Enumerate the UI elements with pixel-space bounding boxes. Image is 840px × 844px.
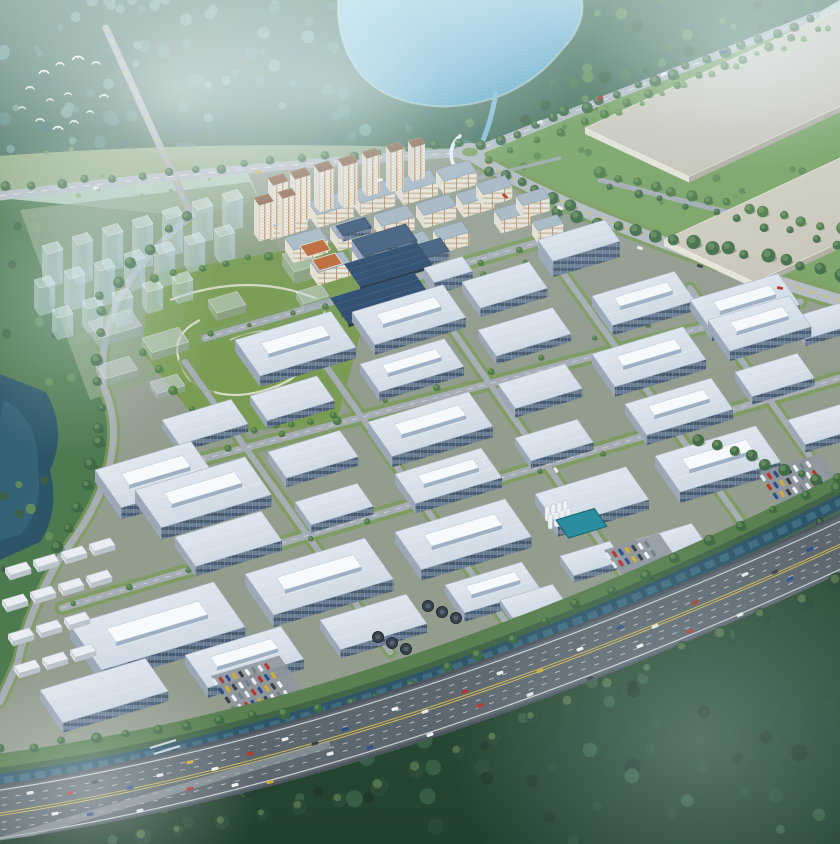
tree-highlight	[514, 132, 518, 136]
rooftop-vent-core	[390, 641, 395, 646]
canopy-blob	[548, 762, 557, 771]
canopy-blob	[332, 135, 343, 146]
canopy-blob	[540, 100, 550, 110]
tree-highlight	[723, 242, 730, 249]
tree-highlight	[634, 178, 638, 182]
canopy-blob	[234, 126, 245, 137]
tree-highlight	[817, 519, 821, 523]
canopy-blob	[713, 174, 721, 182]
canopy-blob	[42, 345, 51, 354]
canopy-blob	[329, 42, 340, 53]
tree-highlight	[523, 260, 525, 262]
tree-highlight	[616, 110, 620, 114]
canopy-blob	[322, 83, 334, 95]
tree-highlight	[799, 471, 803, 475]
tree-highlight	[705, 536, 711, 542]
tree-highlight	[559, 106, 564, 111]
tree-highlight	[94, 437, 100, 443]
canopy-blob	[278, 102, 286, 110]
tree-highlight	[774, 30, 779, 35]
tree-highlight	[58, 180, 63, 185]
canopy-blob	[5, 222, 12, 229]
roundabout-island	[462, 148, 478, 157]
tree-highlight	[485, 168, 490, 173]
canopy-blob	[465, 118, 474, 127]
canopy-blob	[67, 373, 76, 382]
canopy-blob	[70, 12, 80, 22]
canopy-blob	[337, 105, 351, 119]
canopy-blob	[327, 1, 336, 10]
canopy-blob	[231, 70, 239, 78]
tree-highlight	[787, 227, 791, 231]
canopy-blob	[768, 788, 782, 802]
canopy-blob	[44, 79, 52, 87]
tree-highlight	[183, 212, 188, 217]
tree-highlight	[183, 722, 188, 727]
canopy-blob	[103, 78, 114, 89]
canopy-blob	[741, 787, 750, 796]
tree-highlight	[486, 157, 490, 161]
tree-highlight	[714, 209, 717, 212]
canopy-blob	[213, 118, 226, 131]
tree-highlight	[801, 37, 804, 40]
canopy-blob	[631, 20, 643, 32]
tree-highlight	[791, 23, 796, 28]
tree-highlight	[645, 90, 650, 95]
canopy-blob	[534, 152, 542, 160]
canopy-blob	[25, 504, 36, 515]
canopy-blob	[616, 8, 627, 19]
tree-highlight	[688, 236, 695, 243]
tree-highlight	[539, 355, 542, 358]
tree-highlight	[781, 212, 785, 216]
tree-highlight	[558, 129, 562, 133]
scene-canvas	[0, 0, 840, 844]
tree-highlight	[534, 137, 537, 140]
tree-highlight	[217, 816, 224, 823]
ghost-tower	[142, 279, 163, 314]
tree-highlight	[258, 809, 264, 815]
tree-highlight	[248, 323, 250, 325]
tree-highlight	[761, 224, 765, 228]
tree-highlight	[674, 82, 678, 86]
canopy-blob	[776, 825, 785, 834]
tree-highlight	[126, 258, 132, 264]
canopy-blob	[40, 121, 52, 133]
canopy-blob	[681, 794, 694, 807]
tree-highlight	[816, 264, 822, 270]
canopy-blob	[400, 114, 407, 121]
tree-highlight	[601, 111, 605, 115]
canopy-blob	[759, 730, 772, 743]
tree-highlight	[241, 160, 245, 164]
canopy-blob	[70, 1, 82, 13]
tree-highlight	[770, 506, 774, 510]
tower-facade	[391, 149, 404, 193]
canopy-blob	[57, 24, 64, 31]
tree-highlight	[169, 387, 174, 392]
canopy-blob	[16, 342, 26, 352]
tree-highlight	[456, 139, 460, 143]
tree-highlight	[737, 41, 742, 46]
tree-highlight	[834, 242, 838, 246]
tree-highlight	[797, 217, 802, 222]
residential-tower	[338, 155, 358, 209]
tree-highlight	[747, 451, 753, 457]
tree-highlight	[816, 27, 819, 30]
canopy-blob	[594, 10, 601, 17]
tree-highlight	[669, 70, 675, 76]
canopy-blob	[162, 115, 172, 125]
tree-highlight	[660, 91, 663, 94]
canopy-blob	[157, 44, 171, 58]
canopy-blob	[684, 46, 695, 57]
tree-highlight	[186, 568, 189, 571]
tree-highlight	[615, 222, 620, 227]
tree-highlight	[136, 830, 145, 839]
residential-tower	[314, 161, 334, 213]
tree-highlight	[669, 236, 674, 241]
tree-highlight	[94, 424, 99, 429]
canopy-blob	[29, 351, 41, 363]
tree-highlight	[71, 601, 74, 604]
tree-highlight	[607, 184, 610, 187]
tree-highlight	[508, 148, 511, 151]
tree-highlight	[294, 801, 302, 809]
canopy-blob	[0, 492, 9, 501]
rooftop-vent-core	[376, 635, 381, 640]
canopy-blob	[258, 151, 262, 155]
tree-highlight	[314, 704, 319, 709]
tree-highlight	[98, 307, 103, 312]
canopy-blob	[226, 85, 233, 92]
road-car	[93, 186, 99, 189]
tree-highlight	[190, 407, 193, 410]
canopy-blob	[115, 4, 124, 13]
tree-highlight	[681, 82, 684, 85]
canopy-blob	[245, 47, 257, 59]
tree-highlight	[109, 176, 113, 180]
tree-highlight	[123, 731, 127, 735]
canopy-blob	[221, 76, 231, 86]
tree-highlight	[53, 542, 59, 548]
tree-highlight	[2, 182, 7, 187]
canopy-blob	[8, 260, 16, 268]
tree-highlight	[832, 483, 838, 489]
tree-highlight	[200, 266, 203, 269]
tree-highlight	[348, 699, 352, 703]
tree-highlight	[434, 385, 438, 389]
tree-highlight	[696, 72, 700, 76]
tree-highlight	[497, 136, 502, 141]
tree-highlight	[694, 436, 700, 442]
tree-highlight	[92, 355, 98, 361]
tree-highlight	[444, 663, 449, 668]
tree-highlight	[737, 522, 742, 527]
tree-highlight	[519, 178, 523, 182]
tree-highlight	[86, 459, 92, 465]
canopy-blob	[338, 88, 350, 100]
tree-highlight	[780, 465, 786, 471]
tree-highlight	[765, 43, 770, 48]
tree-highlight	[734, 215, 738, 219]
canopy-blob	[268, 59, 280, 71]
tree-highlight	[151, 275, 155, 279]
canopy-blob	[453, 118, 462, 127]
canopy-blob	[592, 802, 601, 811]
tree-highlight	[249, 711, 254, 716]
tree-highlight	[488, 733, 495, 740]
tree-highlight	[166, 169, 170, 173]
canopy-blob	[122, 139, 129, 146]
tree-highlight	[140, 173, 144, 177]
tree-highlight	[652, 183, 657, 188]
tree-highlight	[802, 492, 807, 497]
tree-highlight	[114, 278, 120, 284]
canopy-blob	[12, 105, 19, 112]
tree-highlight	[796, 262, 801, 267]
tree-highlight	[651, 76, 657, 82]
canopy-blob	[646, 744, 656, 754]
tree-highlight	[825, 26, 828, 29]
tree-highlight	[531, 186, 536, 191]
tree-highlight	[731, 447, 736, 452]
tree-highlight	[642, 571, 648, 577]
tree-highlight	[563, 696, 572, 705]
canopy-blob	[305, 17, 314, 26]
canopy-blob	[732, 753, 743, 764]
canopy-blob	[578, 147, 584, 153]
canopy-blob	[33, 370, 40, 377]
tree-highlight	[683, 204, 686, 207]
tree-highlight	[73, 503, 78, 508]
tree-highlight	[431, 141, 436, 146]
tree-highlight	[705, 197, 710, 202]
canopy-blob	[696, 760, 708, 772]
tower-facade	[413, 144, 425, 182]
canopy-blob	[599, 71, 611, 83]
canopy-blob	[13, 222, 21, 230]
tree-highlight	[593, 336, 596, 339]
tower-facade	[259, 201, 273, 241]
canopy-blob	[28, 72, 38, 82]
canopy-blob	[45, 378, 53, 386]
tree-highlight	[156, 366, 160, 370]
tree-highlight	[299, 155, 303, 159]
residential-tower	[254, 194, 274, 242]
tree-highlight	[289, 422, 292, 425]
canopy-blob	[733, 193, 738, 198]
canopy-blob	[562, 124, 567, 129]
residential-tower	[386, 142, 404, 193]
tree-highlight	[94, 378, 99, 383]
tree-highlight	[758, 207, 764, 213]
canopy-blob	[188, 124, 198, 134]
tree-highlight	[631, 225, 637, 231]
ghost-tower	[64, 266, 85, 311]
canopy-blob	[126, 110, 137, 121]
canopy-blob	[521, 115, 532, 126]
tower-facade	[283, 195, 296, 237]
tree-highlight	[478, 260, 481, 263]
silo	[548, 514, 553, 529]
canopy-blob	[302, 105, 312, 115]
canopy-blob	[204, 114, 213, 123]
tree-highlight	[709, 71, 712, 74]
tree-highlight	[808, 16, 812, 20]
tree-highlight	[174, 826, 180, 832]
canopy-blob	[682, 29, 693, 40]
tree-highlight	[323, 304, 326, 307]
canopy-blob	[582, 95, 589, 102]
canopy-blob	[624, 768, 639, 783]
tree-highlight	[830, 574, 839, 583]
canopy-blob	[145, 152, 149, 156]
tree-highlight	[715, 628, 725, 638]
tree-highlight	[722, 63, 726, 67]
tree-highlight	[704, 56, 708, 60]
tree-highlight	[97, 329, 101, 333]
tower-gable	[362, 152, 367, 197]
canopy-blob	[208, 178, 211, 181]
tree-highlight	[223, 261, 226, 264]
canopy-blob	[658, 59, 667, 68]
canopy-blob	[405, 124, 412, 131]
tree-highlight	[334, 794, 341, 801]
residential-tower	[408, 137, 425, 181]
tree-highlight	[322, 152, 326, 156]
tree-highlight	[542, 618, 546, 622]
tree-highlight	[636, 81, 640, 85]
canopy-blob	[207, 91, 221, 105]
tree-highlight	[453, 746, 460, 753]
canopy-blob	[138, 6, 146, 14]
canopy-blob	[208, 5, 218, 15]
canopy-blob	[6, 145, 15, 154]
canopy-blob	[40, 476, 48, 484]
canopy-blob	[730, 23, 736, 29]
canopy-blob	[583, 63, 593, 73]
tree-highlight	[225, 445, 229, 449]
canopy-blob	[605, 105, 610, 110]
canopy-blob	[258, 27, 270, 39]
tree-highlight	[509, 636, 514, 641]
tree-highlight	[640, 102, 642, 104]
tree-highlight	[96, 292, 100, 296]
canopy-blob	[698, 706, 711, 719]
tree-highlight	[682, 62, 686, 66]
tree-highlight	[331, 412, 335, 416]
tree-highlight	[83, 481, 88, 486]
canopy-blob	[269, 2, 281, 14]
canopy-blob	[620, 69, 631, 80]
ghost-tower	[172, 271, 193, 304]
tree-highlight	[99, 405, 103, 409]
canopy-blob	[76, 193, 81, 198]
tree-highlight	[739, 56, 743, 60]
tree-highlight	[280, 709, 286, 715]
canopy-blob	[132, 60, 139, 67]
tree-highlight	[608, 587, 613, 592]
canopy-blob	[363, 792, 374, 803]
canopy-blob	[642, 67, 648, 73]
tree-highlight	[146, 245, 151, 250]
tower-gable	[278, 192, 283, 237]
tree-highlight	[602, 678, 611, 687]
tree-highlight	[140, 349, 144, 353]
canopy-blob	[791, 745, 808, 762]
canopy-blob	[180, 13, 192, 25]
canopy-blob	[739, 188, 745, 194]
tree-highlight	[517, 247, 520, 250]
canopy-blob	[665, 42, 674, 51]
canopy-blob	[181, 39, 191, 49]
tree-highlight	[571, 600, 576, 605]
tower-gable	[314, 165, 319, 212]
tree-highlight	[614, 92, 618, 96]
canopy-blob	[133, 41, 142, 50]
canopy-blob	[758, 23, 764, 29]
tree-highlight	[218, 165, 223, 170]
canopy-blob	[183, 817, 194, 828]
canopy-blob	[719, 17, 726, 24]
tree-highlight	[834, 474, 839, 479]
canopy-blob	[204, 81, 212, 89]
tree-highlight	[667, 188, 672, 193]
canopy-blob	[419, 788, 435, 804]
canopy-blob	[422, 107, 432, 117]
tree-highlight	[267, 157, 271, 161]
tree-highlight	[734, 64, 737, 67]
canopy-blob	[73, 107, 79, 113]
tree-highlight	[782, 46, 785, 49]
canopy-blob	[480, 772, 493, 785]
tree-highlight	[635, 190, 639, 194]
tree-highlight	[817, 223, 821, 227]
canopy-blob	[259, 49, 265, 55]
tree-highlight	[410, 762, 419, 771]
tree-highlight	[756, 609, 763, 616]
tree-highlight	[92, 734, 97, 739]
tree-highlight	[797, 594, 806, 603]
rooftop-vent-core	[440, 610, 445, 615]
tree-highlight	[583, 103, 589, 109]
aerial-render	[0, 0, 840, 844]
canopy-blob	[179, 102, 189, 112]
tree-highlight	[782, 255, 788, 261]
canopy-blob	[826, 699, 834, 707]
tree-highlight	[245, 255, 248, 258]
tower-facade	[319, 168, 333, 212]
tree-highlight	[755, 51, 758, 54]
canopy-blob	[549, 79, 555, 85]
tree-highlight	[572, 212, 578, 218]
canopy-blob	[44, 150, 49, 155]
canopy-blob	[583, 743, 598, 758]
rooftop-vent-core	[404, 647, 409, 652]
canopy-blob	[249, 67, 257, 75]
tree-highlight	[127, 584, 130, 587]
canopy-blob	[584, 149, 592, 157]
canopy-blob	[650, 719, 661, 730]
tree-highlight	[678, 643, 685, 650]
canopy-blob	[61, 106, 73, 118]
canopy-blob	[107, 114, 119, 126]
tree-highlight	[650, 231, 656, 237]
canopy-blob	[292, 50, 300, 58]
tree-highlight	[553, 208, 558, 213]
ghost-tower	[214, 224, 235, 263]
